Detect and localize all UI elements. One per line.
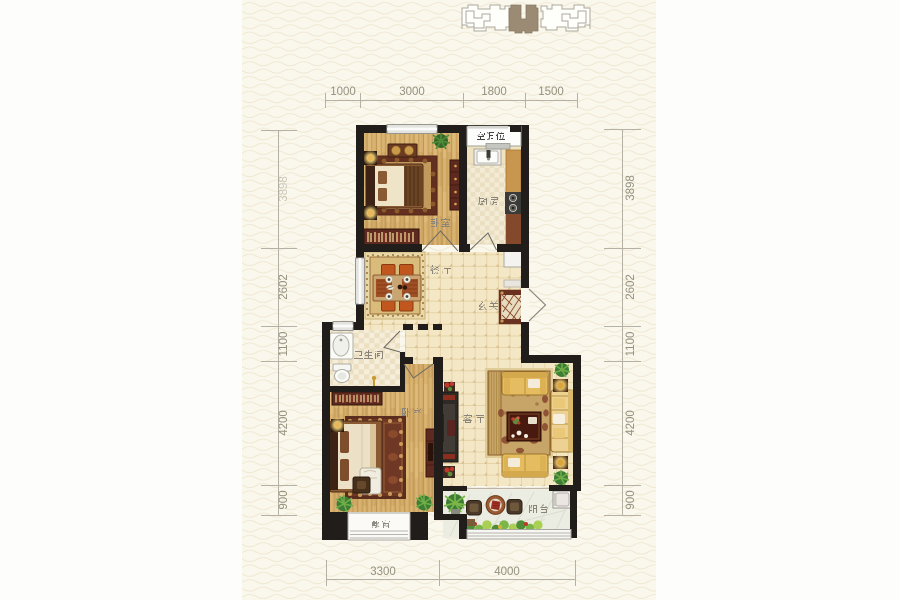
svg-text:4000: 4000 [494,566,520,578]
svg-text:3300: 3300 [370,566,396,578]
svg-text:3898: 3898 [625,175,637,201]
svg-text:4200: 4200 [625,410,637,436]
svg-text:3000: 3000 [399,86,425,98]
svg-text:1500: 1500 [538,86,564,98]
svg-text:2602: 2602 [625,274,637,300]
svg-text:1100: 1100 [625,332,637,357]
svg-text:4200: 4200 [278,410,290,436]
svg-text:900: 900 [625,490,637,509]
svg-text:1000: 1000 [330,86,356,98]
svg-text:1100: 1100 [278,332,290,357]
svg-text:2602: 2602 [278,274,290,300]
svg-text:1800: 1800 [481,86,507,98]
svg-text:900: 900 [278,490,290,509]
svg-text:3898: 3898 [278,176,290,202]
